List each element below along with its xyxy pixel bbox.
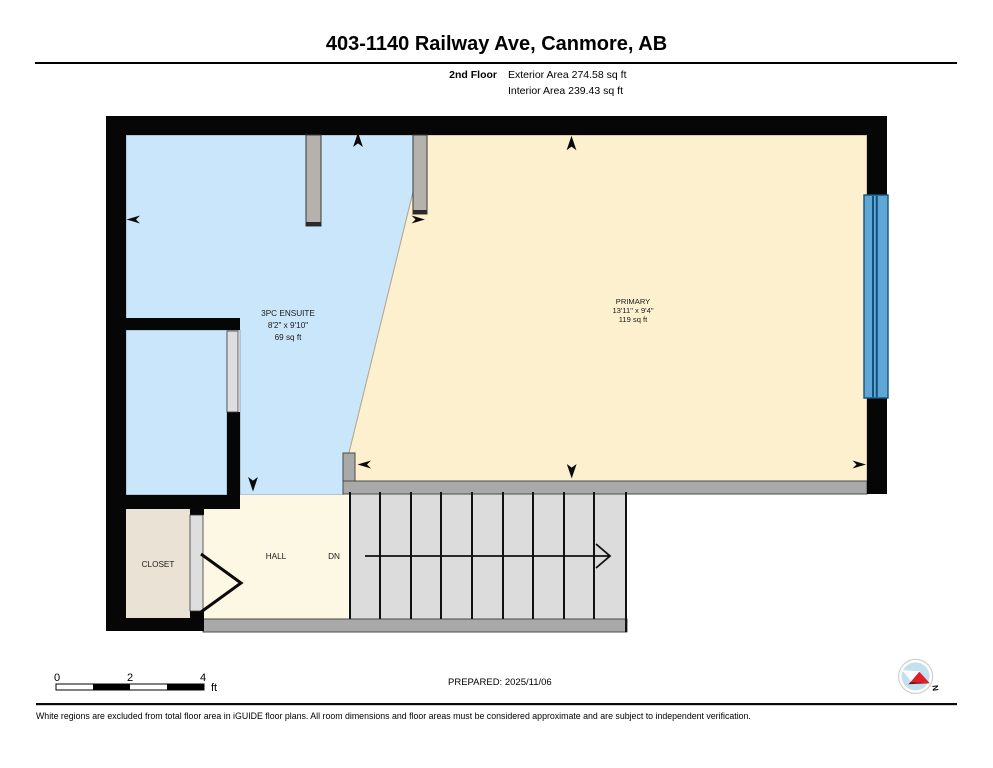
svg-text:N: N bbox=[930, 685, 940, 692]
svg-text:8'2" x 9'10": 8'2" x 9'10" bbox=[268, 321, 308, 330]
svg-text:2: 2 bbox=[127, 672, 133, 684]
svg-text:13'11" x 9'4": 13'11" x 9'4" bbox=[612, 306, 653, 315]
svg-text:HALL: HALL bbox=[266, 552, 287, 561]
svg-text:PRIMARY: PRIMARY bbox=[616, 297, 650, 306]
svg-text:DN: DN bbox=[328, 552, 340, 561]
svg-text:ft: ft bbox=[211, 682, 217, 694]
svg-text:CLOSET: CLOSET bbox=[142, 560, 175, 569]
svg-text:119 sq ft: 119 sq ft bbox=[619, 315, 648, 324]
svg-text:PREPARED: 2025/11/06: PREPARED: 2025/11/06 bbox=[448, 677, 552, 688]
svg-text:3PC ENSUITE: 3PC ENSUITE bbox=[261, 309, 315, 318]
svg-text:0: 0 bbox=[54, 672, 60, 684]
svg-text:4: 4 bbox=[200, 672, 206, 684]
svg-text:69 sq ft: 69 sq ft bbox=[275, 333, 303, 342]
